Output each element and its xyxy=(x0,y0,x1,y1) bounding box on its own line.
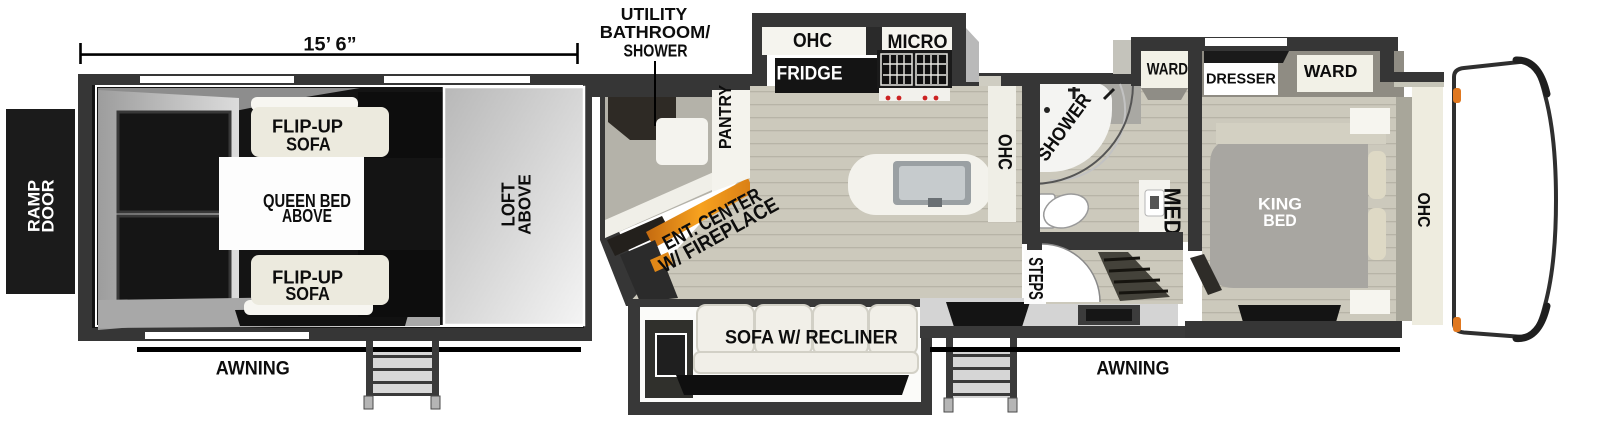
svg-text:ABOVE: ABOVE xyxy=(514,174,535,234)
svg-text:ABOVE: ABOVE xyxy=(282,206,332,226)
svg-text:BATHROOM/: BATHROOM/ xyxy=(600,22,711,42)
svg-text:MICRO: MICRO xyxy=(888,30,948,52)
svg-text:STEPS: STEPS xyxy=(1024,257,1047,299)
svg-text:SOFA W/ RECLINER: SOFA W/ RECLINER xyxy=(725,326,898,348)
svg-text:OHC: OHC xyxy=(793,29,832,51)
svg-text:DOOR: DOOR xyxy=(39,180,57,233)
svg-text:OHC: OHC xyxy=(1414,193,1434,228)
svg-text:FRIDGE: FRIDGE xyxy=(777,62,843,84)
svg-text:UTILITY: UTILITY xyxy=(621,4,688,24)
svg-text:WARD: WARD xyxy=(1147,60,1188,79)
svg-text:MED: MED xyxy=(1159,188,1185,235)
svg-text:PANTRY: PANTRY xyxy=(715,85,735,149)
svg-text:KING: KING xyxy=(1258,195,1302,213)
svg-text:AWNING: AWNING xyxy=(216,357,290,379)
svg-text:OHC: OHC xyxy=(994,134,1016,170)
svg-text:SOFA: SOFA xyxy=(286,133,331,154)
svg-text:DRESSER: DRESSER xyxy=(1206,71,1276,87)
svg-text:15’ 6”: 15’ 6” xyxy=(303,34,356,56)
svg-text:AWNING: AWNING xyxy=(1096,357,1169,379)
svg-text:WARD: WARD xyxy=(1304,61,1357,81)
svg-text:SHOWER: SHOWER xyxy=(624,42,688,61)
svg-text:BED: BED xyxy=(1263,212,1296,230)
svg-text:SOFA: SOFA xyxy=(285,283,330,304)
